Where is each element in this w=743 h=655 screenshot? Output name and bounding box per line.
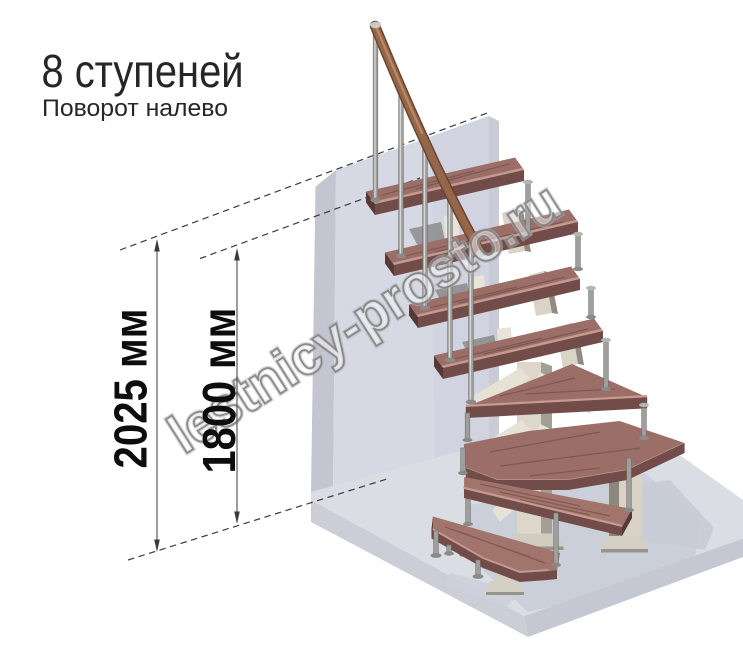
svg-text:8 ступеней: 8 ступеней xyxy=(42,45,244,97)
svg-text:Поворот налево: Поворот налево xyxy=(42,95,228,122)
svg-text:2025 мм: 2025 мм xyxy=(105,309,157,469)
svg-text:1800 мм: 1800 мм xyxy=(193,308,245,474)
